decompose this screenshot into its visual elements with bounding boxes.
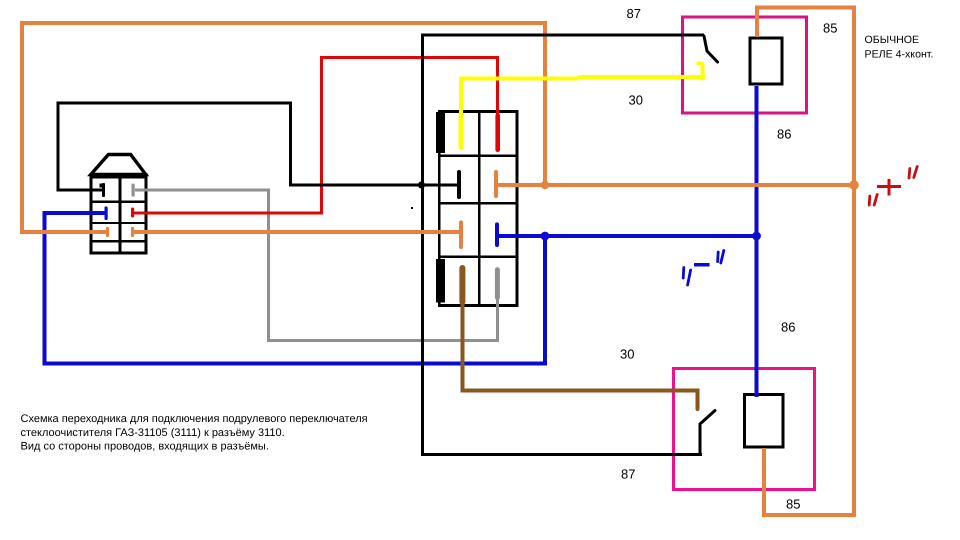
svg-text:30: 30 [620,347,634,362]
svg-text:Схемка переходника для подключ: Схемка переходника для подключения подру… [21,413,368,425]
svg-text:стеклоочистителя ГАЗ-31105 (31: стеклоочистителя ГАЗ-31105 (3111) к разъ… [21,427,285,439]
svg-text:85: 85 [823,20,837,35]
svg-text:Вид со стороны проводов, входя: Вид со стороны проводов, входящих в разъ… [21,441,269,453]
svg-text:30: 30 [629,93,643,108]
svg-text:87: 87 [627,6,641,21]
svg-text:86: 86 [777,127,791,142]
svg-text:86: 86 [781,320,795,335]
svg-text:85: 85 [786,497,800,512]
svg-text:РЕЛЕ 4-хконт.: РЕЛЕ 4-хконт. [865,49,934,61]
svg-text:ОБЫЧНОЕ: ОБЫЧНОЕ [865,34,920,46]
svg-text:87: 87 [621,467,635,482]
